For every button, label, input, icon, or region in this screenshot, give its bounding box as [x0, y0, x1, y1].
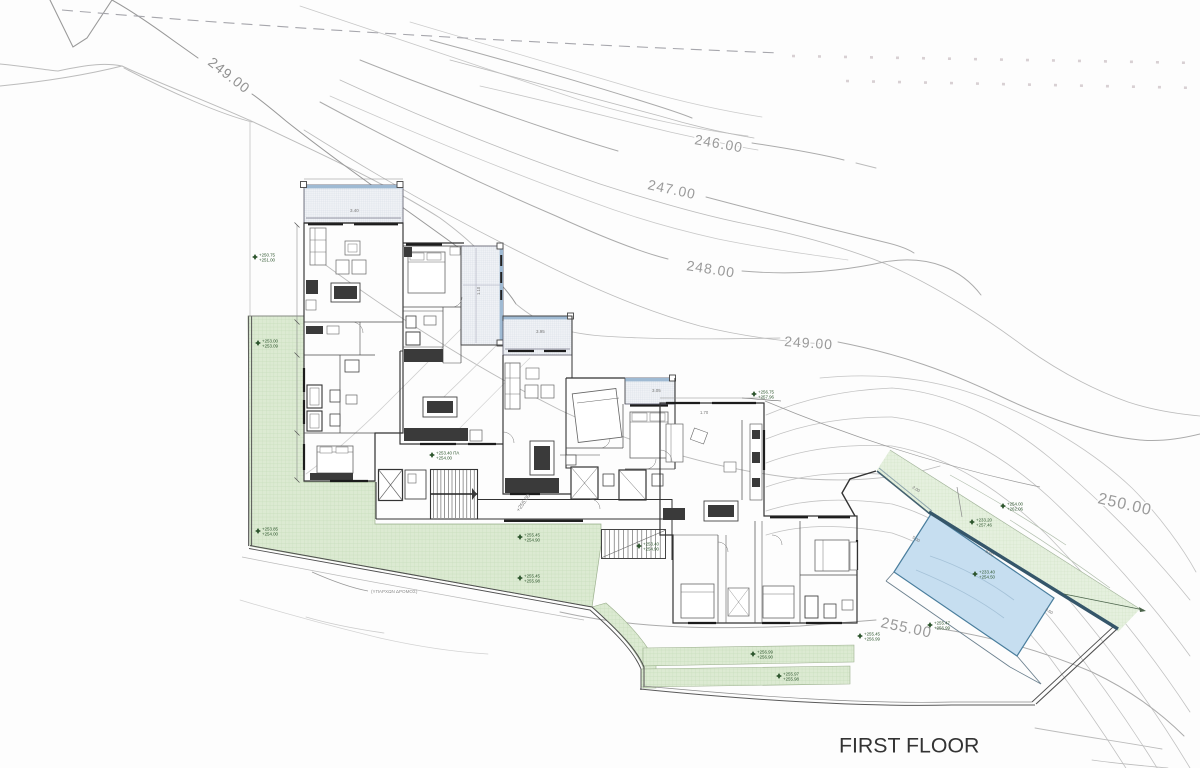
- svg-text:1.70: 1.70: [700, 410, 709, 415]
- svg-text:+254.00: +254.00: [262, 531, 279, 536]
- svg-text:+256.99: +256.99: [934, 625, 951, 630]
- svg-text:+254.50: +254.50: [979, 574, 996, 579]
- svg-text:+254.00: +254.00: [436, 455, 453, 460]
- svg-text:+255.98: +255.98: [783, 676, 800, 681]
- svg-text:+253.09: +253.09: [262, 343, 279, 348]
- svg-text:+257.46: +257.46: [976, 522, 993, 527]
- svg-text:+257.96: +257.96: [758, 394, 775, 399]
- svg-text:+256.99: +256.99: [864, 636, 881, 641]
- svg-text:249.00: 249.00: [784, 333, 834, 352]
- svg-text:+256.90: +256.90: [757, 654, 774, 659]
- svg-text:3.40: 3.40: [350, 208, 359, 213]
- svg-text:1.10: 1.10: [476, 286, 481, 295]
- svg-text:FIRST FLOOR: FIRST FLOOR: [839, 734, 979, 758]
- svg-text:3.95: 3.95: [536, 329, 545, 334]
- svg-text:3.05: 3.05: [652, 388, 661, 393]
- svg-text:+254.90: +254.90: [643, 546, 660, 551]
- svg-text:+262.06: +262.06: [1007, 506, 1024, 511]
- svg-text:+251.00: +251.00: [259, 257, 276, 262]
- svg-text:(ΥΠΑΡΧΩΝ ΔΡΟΜΟΣ): (ΥΠΑΡΧΩΝ ΔΡΟΜΟΣ): [371, 589, 418, 594]
- svg-text:+254.90: +254.90: [524, 537, 541, 542]
- svg-text:+255.98: +255.98: [524, 578, 541, 583]
